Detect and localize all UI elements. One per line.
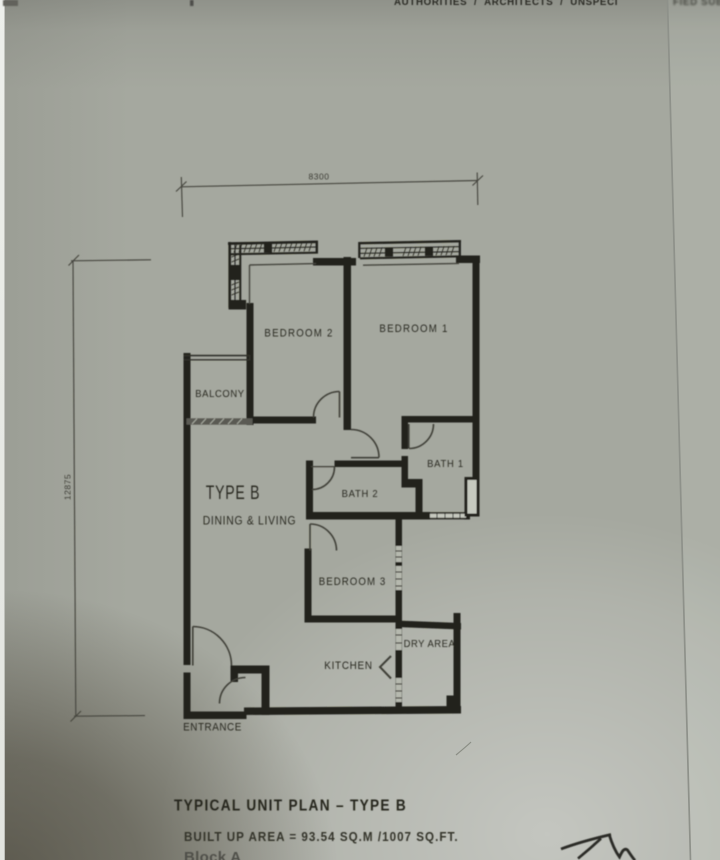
svg-text:12875: 12875 — [63, 474, 73, 500]
svg-text:BATH 1: BATH 1 — [427, 459, 464, 471]
svg-text:BUILT UP AREA = 93.54 SQ.M /10: BUILT UP AREA = 93.54 SQ.M /1007 SQ.FT. — [184, 830, 459, 844]
svg-text:TYPICAL UNIT PLAN – TYPE B: TYPICAL UNIT PLAN – TYPE B — [174, 798, 407, 815]
svg-text:TYPE B: TYPE B — [206, 482, 260, 504]
svg-text:BATH 2: BATH 2 — [342, 489, 379, 501]
svg-text:BEDROOM 3: BEDROOM 3 — [319, 577, 387, 589]
svg-text:DRY AREA: DRY AREA — [404, 639, 456, 651]
svg-text:BALCONY: BALCONY — [195, 389, 244, 401]
svg-text:ENTRANCE: ENTRANCE — [183, 722, 242, 734]
svg-text:Block A: Block A — [184, 849, 241, 860]
svg-text:DINING & LIVING: DINING & LIVING — [203, 515, 297, 528]
svg-text:8300: 8300 — [309, 172, 330, 182]
svg-text:BEDROOM 1: BEDROOM 1 — [379, 324, 448, 336]
svg-text:KITCHEN: KITCHEN — [324, 661, 372, 673]
svg-text:BEDROOM 2: BEDROOM 2 — [264, 328, 333, 340]
